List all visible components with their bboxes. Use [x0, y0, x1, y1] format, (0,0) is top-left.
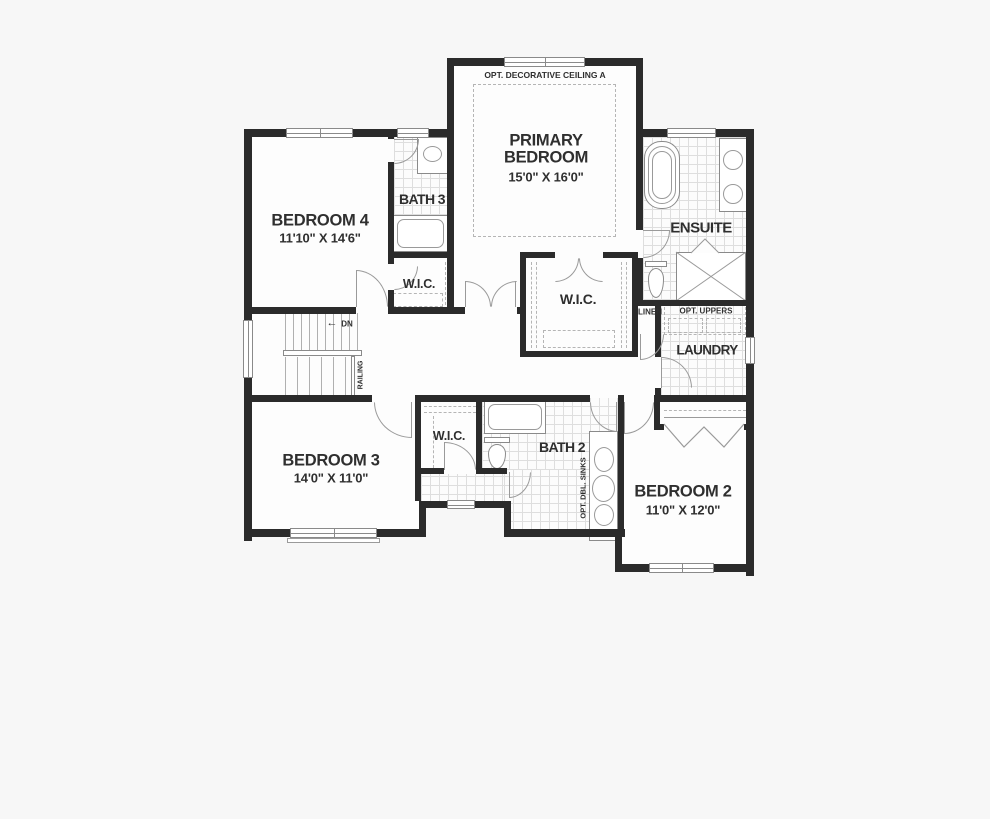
laundry-upper-cabinet-right [706, 318, 741, 333]
bath3-sink-fixture [423, 146, 442, 162]
wall [388, 162, 394, 264]
bedroom4-label: BEDROOM 4 [271, 212, 368, 231]
ensuite-toilet-tank [645, 261, 667, 267]
stairs-railing-label: RAILING [358, 361, 365, 390]
ensuite-tub-ring2 [652, 151, 672, 199]
wall [415, 398, 421, 501]
wall [636, 258, 643, 304]
wall [504, 529, 625, 537]
wic-bedroom4-rod [445, 262, 446, 310]
bedroom3-dims: 14'0" X 11'0" [294, 471, 368, 486]
wall [636, 58, 643, 137]
ensuite-shower-door [691, 239, 719, 253]
wall [388, 307, 465, 314]
wic-bedroom3-shelf1 [424, 406, 476, 407]
wall [654, 395, 754, 402]
wall [520, 351, 638, 357]
bath2-sink-fixture-3 [594, 504, 614, 526]
bath2-door-leaf [616, 402, 617, 432]
bedroom2-closet-shelf [664, 417, 746, 418]
bath2-toilet-tank [484, 437, 510, 443]
vestibule-window [447, 500, 475, 509]
wall [636, 300, 754, 306]
primary-bedroom-label: PRIMARY BEDROOM [486, 133, 606, 166]
ensuite-window [667, 128, 716, 138]
stairs-railing-vertical [351, 356, 355, 396]
laundry-upper-cabinet-left [668, 318, 703, 333]
ensuite-sink-fixture-2 [723, 184, 743, 204]
stairs-dn-label: DN [341, 320, 353, 329]
primary-ceiling-note-label: OPT. DECORATIVE CEILING A [484, 70, 605, 80]
bedroom4-door-leaf [356, 270, 357, 307]
laundry-window [745, 337, 755, 364]
wall [415, 468, 444, 474]
wall [419, 503, 426, 537]
ensuite-label: ENSUITE [670, 220, 732, 237]
bedroom2-dims: 11'0" X 12'0" [646, 503, 720, 518]
bedroom2-label: BEDROOM 2 [634, 483, 731, 502]
wall [476, 468, 507, 474]
wall [388, 252, 454, 258]
bedroom2-closet-bifold-doors [664, 424, 744, 450]
linen-door-leaf [640, 334, 641, 360]
bath2-sink-fixture-1 [594, 447, 614, 472]
bedroom3-window [290, 528, 377, 538]
wic-bedroom4-label: W.I.C. [403, 277, 435, 291]
floor-plan: OPT. DECORATIVE CEILING A PRIMARY BEDROO… [0, 0, 990, 819]
wall [636, 137, 643, 230]
ensuite-sink-fixture-1 [723, 150, 743, 170]
laundry-label: LAUNDRY [676, 343, 737, 358]
wall [476, 398, 482, 474]
primary-door-leaf-right [515, 281, 516, 307]
bedroom4-dims: 11'10" X 14'6" [279, 231, 361, 246]
bedroom2-window [649, 563, 714, 573]
wic-primary-rod-right2 [626, 262, 627, 348]
wall [447, 58, 454, 314]
wic-primary-rod-left2 [536, 262, 537, 348]
stairs-window [243, 320, 253, 378]
wall [415, 395, 590, 402]
wic-bedroom4-shelf [393, 293, 443, 307]
bath3-door-leaf [394, 139, 419, 140]
wall [654, 424, 664, 430]
stairs-lower-flight [285, 357, 352, 395]
hall-floor [450, 252, 643, 398]
bedroom3-window-sill [287, 538, 380, 543]
bedroom2-door-leaf [624, 402, 625, 434]
wic-primary-rod-left [531, 262, 532, 348]
wic-bedroom3-shelf2 [424, 412, 476, 413]
linen-label: LINEN [638, 308, 662, 317]
primary-bedroom-window [504, 57, 585, 67]
wall [520, 252, 526, 357]
bath2-vestibule-door-leaf [509, 472, 510, 498]
bath2-sink-fixture-2 [592, 475, 615, 502]
wic-bedroom3-door-leaf [444, 442, 445, 470]
bath2-opt-dbl-sinks-label: OPT. DBL. SINKS [579, 457, 588, 518]
primary-door-leaf-left [465, 281, 466, 307]
ensuite-door-leaf [643, 230, 670, 231]
bedroom3-label: BEDROOM 3 [282, 452, 379, 471]
bath3-tub-inner [397, 219, 444, 248]
bath2-label: BATH 2 [539, 439, 585, 455]
bath2-tub-inner [488, 404, 542, 430]
wall [744, 424, 754, 430]
ensuite-shower-x [676, 252, 746, 301]
wic-primary-rod-right [621, 262, 622, 348]
bath3-window [397, 128, 429, 138]
bath3-label: BATH 3 [399, 191, 445, 207]
wic-primary-shelf [543, 330, 615, 348]
primary-bedroom-dims: 15'0" X 16'0" [508, 170, 583, 185]
bedroom4-window [286, 128, 353, 138]
wic-bedroom3-label: W.I.C. [433, 429, 465, 443]
bedroom2-closet-shelf-dashed [664, 410, 746, 411]
laundry-opt-uppers-label: OPT. UPPERS [680, 307, 733, 316]
bedroom3-door-leaf [411, 402, 412, 438]
wall [244, 307, 356, 314]
laundry-door-leaf [661, 357, 662, 388]
wall [244, 395, 372, 402]
wic-primary-label: W.I.C. [560, 291, 596, 307]
stairs-dn-arrow-icon: ← [327, 317, 338, 329]
